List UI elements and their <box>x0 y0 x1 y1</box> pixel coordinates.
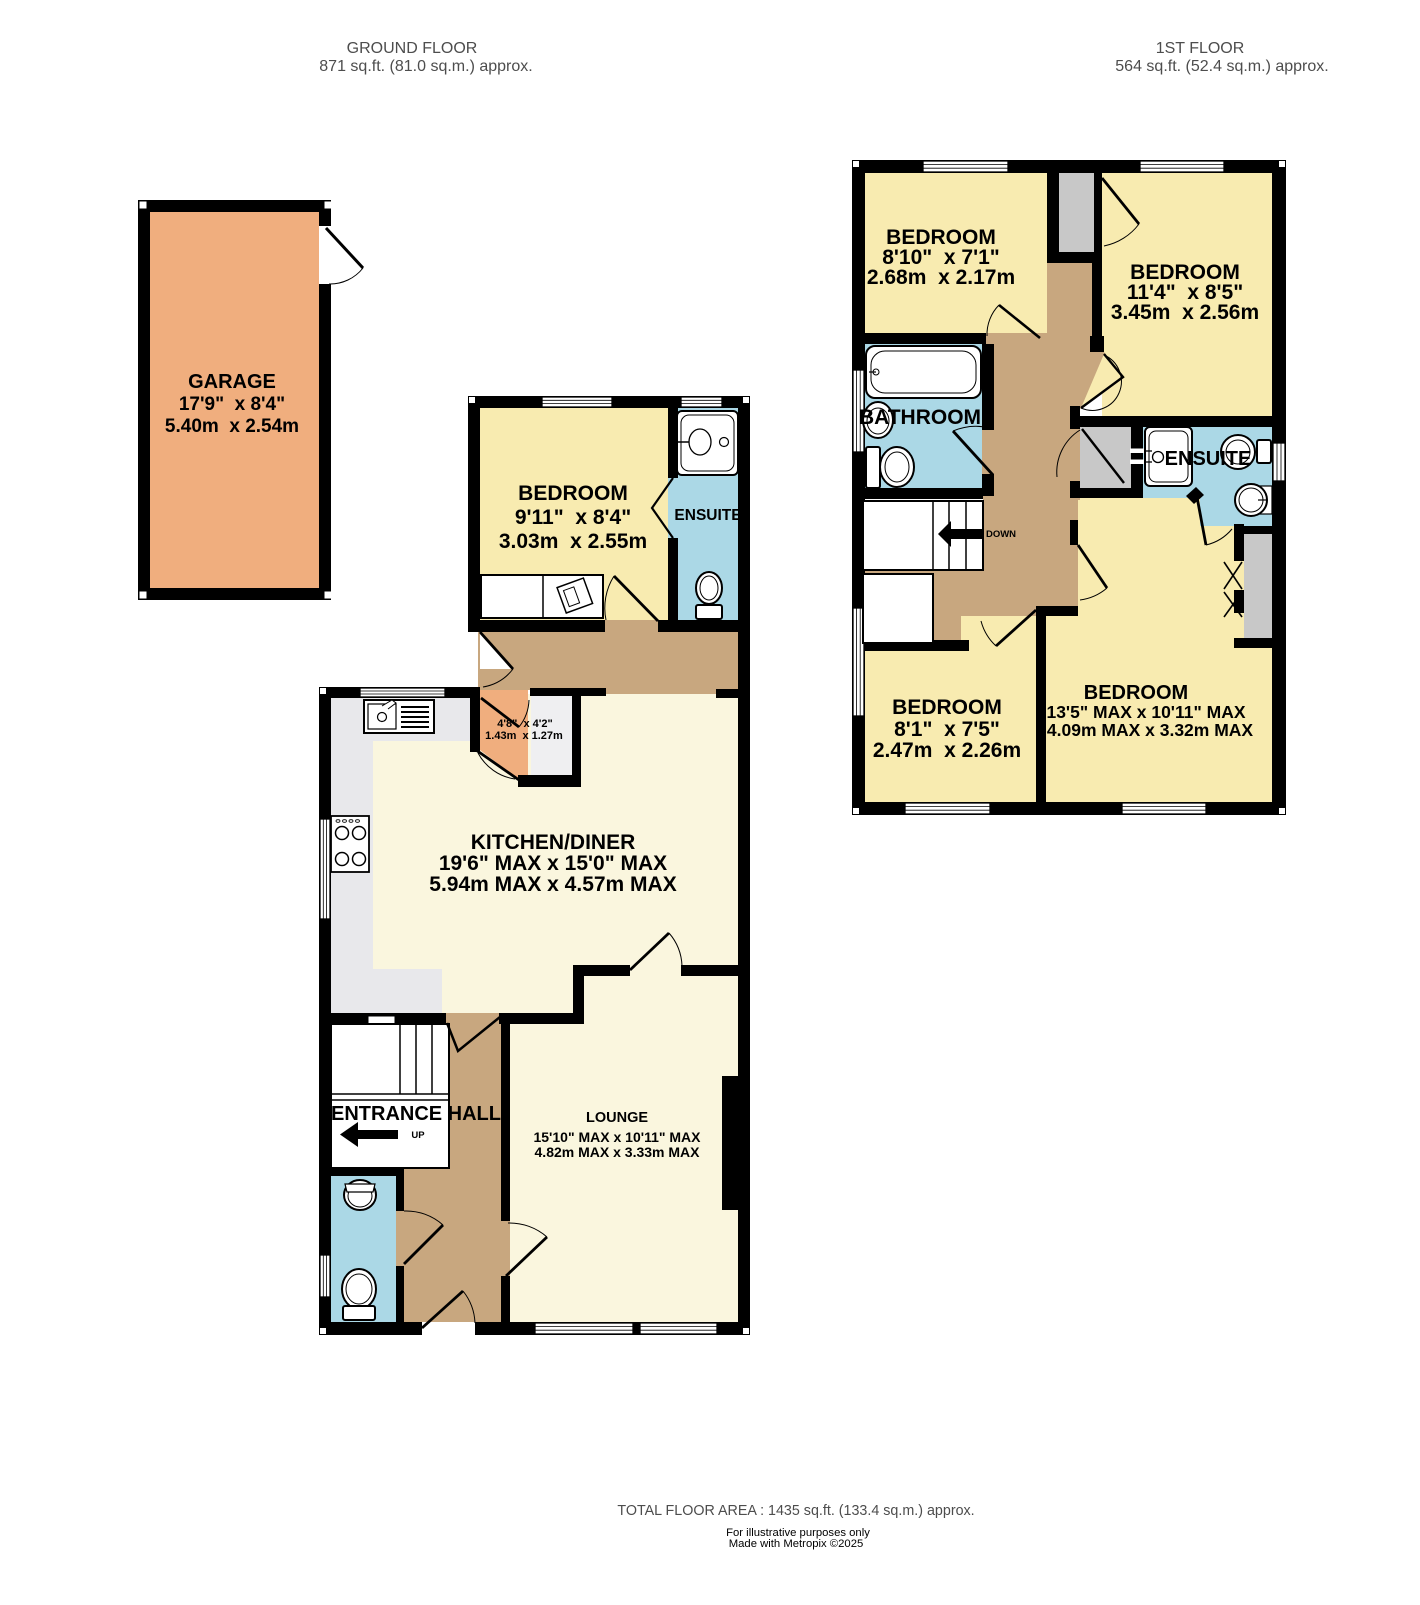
svg-text:9'11" x 8'4": 9'11" x 8'4" <box>515 506 631 529</box>
svg-text:ENSUITE: ENSUITE <box>674 507 741 524</box>
svg-text:1.43m x 1.27m: 1.43m x 1.27m <box>485 730 563 742</box>
svg-text:GARAGE: GARAGE <box>188 371 276 393</box>
svg-text:UP: UP <box>411 1130 425 1141</box>
svg-text:TOTAL FLOOR AREA : 1435 sq.ft.: TOTAL FLOOR AREA : 1435 sq.ft. (133.4 sq… <box>617 1503 974 1519</box>
svg-text:BEDROOM: BEDROOM <box>892 696 1002 719</box>
svg-text:ENTRANCE HALL: ENTRANCE HALL <box>331 1103 501 1125</box>
svg-text:2.68m x 2.17m: 2.68m x 2.17m <box>867 266 1015 289</box>
svg-text:4.09m MAX x 3.32m MAX: 4.09m MAX x 3.32m MAX <box>1047 720 1254 740</box>
svg-text:17'9" x 8'4": 17'9" x 8'4" <box>179 394 285 415</box>
svg-text:Made with Metropix ©2025: Made with Metropix ©2025 <box>729 1538 864 1550</box>
svg-text:13'5" MAX x 10'11" MAX: 13'5" MAX x 10'11" MAX <box>1046 702 1245 722</box>
svg-text:564 sq.ft. (52.4 sq.m.) approx: 564 sq.ft. (52.4 sq.m.) approx. <box>1115 58 1328 75</box>
svg-text:871 sq.ft. (81.0 sq.m.) approx: 871 sq.ft. (81.0 sq.m.) approx. <box>319 58 532 75</box>
svg-text:5.94m MAX x 4.57m MAX: 5.94m MAX x 4.57m MAX <box>429 873 676 896</box>
svg-text:ENSUITE: ENSUITE <box>1165 448 1252 470</box>
svg-text:LOUNGE: LOUNGE <box>586 1110 648 1126</box>
svg-text:4'8" x 4'2": 4'8" x 4'2" <box>497 718 552 730</box>
svg-text:GROUND FLOOR: GROUND FLOOR <box>347 40 478 57</box>
svg-text:3.45m x 2.56m: 3.45m x 2.56m <box>1111 301 1259 324</box>
svg-text:3.03m x 2.55m: 3.03m x 2.55m <box>499 530 647 553</box>
svg-text:2.47m x 2.26m: 2.47m x 2.26m <box>873 739 1021 762</box>
svg-text:BATHROOM: BATHROOM <box>859 406 981 429</box>
svg-text:19'6" MAX x 15'0" MAX: 19'6" MAX x 15'0" MAX <box>439 852 667 875</box>
svg-text:BEDROOM: BEDROOM <box>1084 682 1188 704</box>
svg-text:8'1" x 7'5": 8'1" x 7'5" <box>894 718 1000 741</box>
svg-text:BEDROOM: BEDROOM <box>518 482 628 505</box>
svg-text:4.82m MAX x 3.33m MAX: 4.82m MAX x 3.33m MAX <box>535 1144 701 1160</box>
svg-text:15'10" MAX x 10'11" MAX: 15'10" MAX x 10'11" MAX <box>533 1129 701 1145</box>
svg-text:1ST FLOOR: 1ST FLOOR <box>1156 40 1245 57</box>
svg-text:KITCHEN/DINER: KITCHEN/DINER <box>471 831 636 854</box>
svg-text:DOWN: DOWN <box>986 529 1016 540</box>
svg-text:5.40m x 2.54m: 5.40m x 2.54m <box>165 416 299 437</box>
